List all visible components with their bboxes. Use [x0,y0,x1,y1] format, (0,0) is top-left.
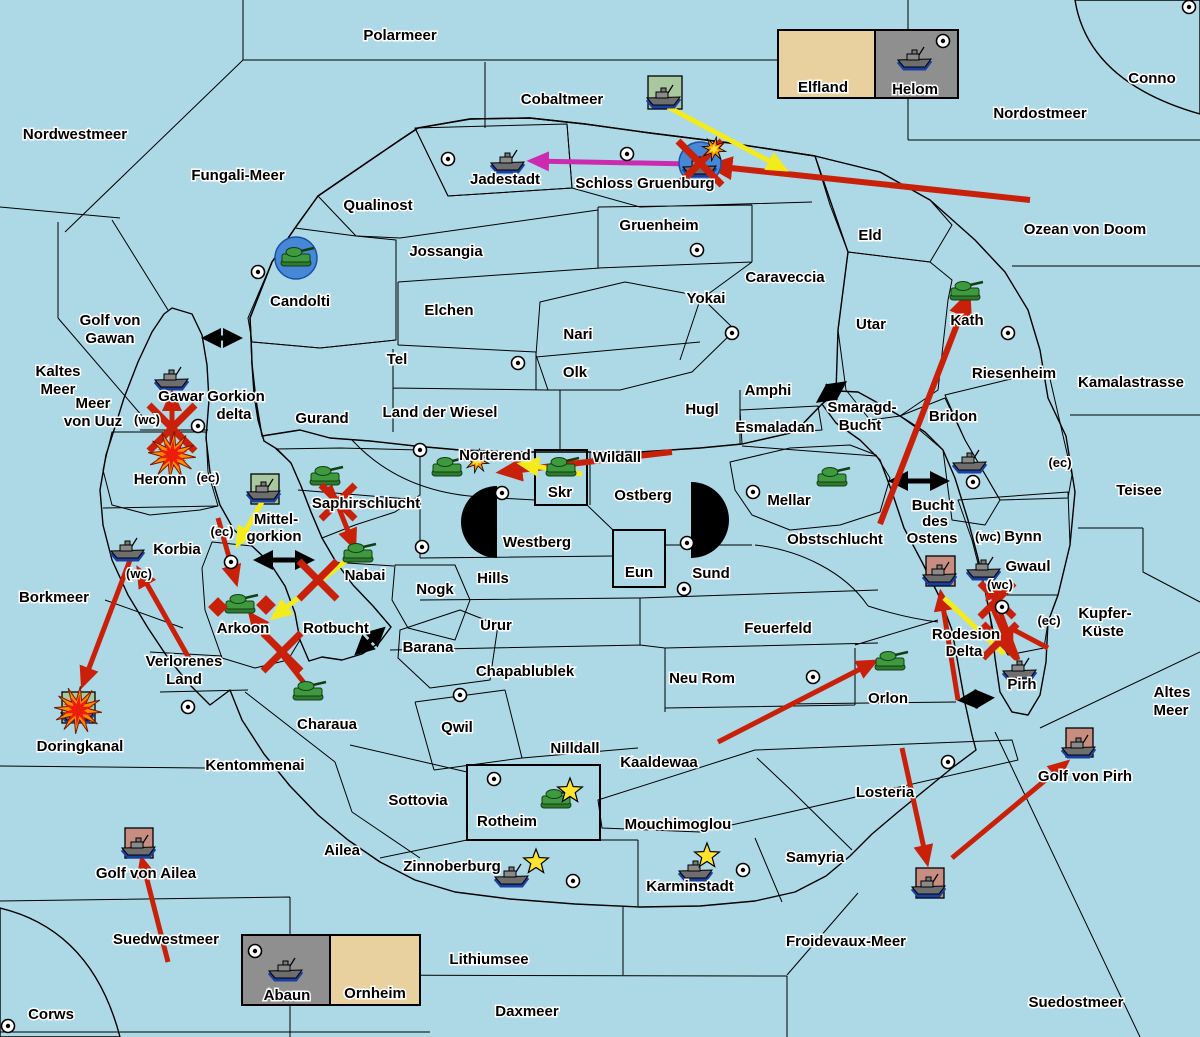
supply-center [192,420,205,433]
supply-center [454,689,467,702]
province-label: Land [166,671,202,688]
province-label: Saphirschlucht [312,495,420,512]
supply-center [416,541,429,554]
province-label: Kamalastrasse [1078,374,1184,391]
province-label: (wc) [134,412,160,427]
supply-center [621,148,634,161]
province-label: Golf von Ailea [96,865,197,882]
province-label: Mouchimoglou [625,816,732,833]
province-label: (ec) [1048,455,1071,470]
province-label: Mellar [767,492,811,509]
supply-center [747,486,760,499]
province-label: Wildall [593,449,641,466]
province-label: Smaragd- [827,399,896,416]
supply-center [726,327,739,340]
province-label: Hills [477,570,509,587]
supply-center [942,756,955,769]
province-label: Golf von Pirh [1038,768,1132,785]
supply-center [496,487,509,500]
province-label: Borkmeer [19,589,89,606]
province-label: Feuerfeld [744,620,812,637]
supply-center [996,601,1009,614]
province-label: Gawar [158,388,204,405]
province-label: Suedostmeer [1028,994,1123,1011]
province-label: Gawan [85,330,134,347]
province-label: Westberg [503,534,571,551]
province-label: Gruenheim [619,217,698,234]
province-label: (wc) [126,566,152,581]
province-label: Nogk [416,581,454,598]
supply-center [414,444,427,457]
province-label: Charaua [297,716,358,733]
province-label: Losteria [856,784,915,801]
province-label: Bynn [1004,528,1042,545]
supply-center [691,244,704,257]
province-label: Bucht [839,417,882,434]
province-label: Nordwestmeer [23,126,127,143]
supply-center [937,35,950,48]
province-label: Abaun [264,987,311,1004]
province-label: Corws [28,1006,74,1023]
province-label: Barana [403,639,455,656]
province-label: Ozean von Doom [1024,221,1147,238]
province-label: Eun [625,564,653,581]
province-label: Meer [1153,702,1188,719]
province-label: Karminstadt [646,878,734,895]
province-label: Kath [950,312,983,329]
province-label: Nilldall [550,740,599,757]
province-label: Conno [1128,70,1175,87]
province-label: Meer [40,381,75,398]
supply-center [249,945,262,958]
war-map: PolarmeerCobaltmeerNordwestmeerFungali-M… [0,0,1200,1037]
province-label: des [922,513,948,530]
province-label: Gwaul [1005,558,1050,575]
province-label: Helom [892,81,938,98]
province-label: Delta [946,643,983,660]
province-label: Verlorenes [146,653,223,670]
supply-center [1183,1,1196,14]
supply-center [967,476,980,489]
supply-center [225,556,238,569]
province-label: Heronn [134,471,187,488]
province-label: Kupfer- [1078,605,1131,622]
province-label: Suedwestmeer [113,931,219,948]
province-label: Skr [548,484,572,501]
map-svg: PolarmeerCobaltmeerNordwestmeerFungali-M… [0,0,1200,1037]
province-label: Schloss Gruenburg [575,175,714,192]
province-label: Rodesion [932,626,1000,643]
strait-double-arrow [962,698,990,700]
province-label: Jadestadt [470,171,540,188]
province-label: Mittel- [254,511,298,528]
province-label: Doringkanal [37,738,124,755]
province-label: (wc) [975,529,1001,544]
province-label: Orlon [868,690,908,707]
province-label: Nordostmeer [993,105,1087,122]
province-label: Obstschlucht [787,531,883,548]
province-label: Ostberg [614,487,672,504]
province-label: Urur [480,617,512,634]
province-label: Kaltes [35,363,80,380]
supply-center [252,266,265,279]
province-label: Kaaldewaa [620,754,698,771]
province-label: Utar [856,316,886,333]
province-label: Teisee [1116,482,1162,499]
province-label: Olk [563,364,588,381]
province-label: Korbia [153,541,201,558]
province-label: Gurand [295,410,348,427]
province-label: Amphi [745,382,792,399]
province-label: delta [216,406,252,423]
province-label: gorkion [247,528,302,545]
province-label: Gorkion [207,388,265,405]
province-label: Samyria [786,849,845,866]
retreat-arrow [532,161,692,164]
province-label: Esmaladan [735,419,814,436]
province-label: Bridon [929,408,977,425]
supply-center [737,864,750,877]
supply-center [182,701,195,714]
supply-center [567,875,580,888]
province-label: von Uuz [64,413,122,430]
supply-center [442,153,455,166]
province-label: (ec) [1037,613,1060,628]
province-label: Jossangia [409,243,483,260]
province-label: Candolti [270,293,330,310]
province-label: Altes [1154,684,1191,701]
province-label: Hugl [685,401,718,418]
supply-center [512,357,525,370]
province-label: (wc) [987,577,1013,592]
supply-center [488,773,501,786]
province-label: Chapablublek [476,663,575,680]
province-label: Ostens [907,530,958,547]
supply-center [1002,327,1015,340]
province-label: Cobaltmeer [521,91,604,108]
province-label: Sottovia [388,792,448,809]
province-label: Kentommenai [205,757,304,774]
province-label: Meer [75,395,110,412]
province-label: Nabai [345,567,386,584]
province-label: Rotbucht [303,620,369,637]
province-label: (ec) [196,470,219,485]
supply-center [807,671,820,684]
province-label: Daxmeer [495,1003,559,1020]
province-label: Rotheim [477,813,537,830]
province-label: Elchen [424,302,473,319]
province-label: Elfland [798,79,848,96]
province-label: Pirh [1007,676,1036,693]
supply-center [2,1020,15,1033]
province-label: Arkoon [217,620,270,637]
province-label: Land der Wiesel [383,404,498,421]
province-label: Norterend [459,447,531,464]
province-label: Golf von [80,312,141,329]
province-label: Fungali-Meer [191,167,285,184]
province-label: Caraveccia [745,269,825,286]
supply-center [681,537,694,550]
province-label: Nari [563,326,592,343]
province-label: Ornheim [344,985,406,1002]
province-label: Tel [387,351,408,368]
province-label: Qwil [441,719,473,736]
province-label: Polarmeer [363,27,437,44]
province-label: Neu Rom [669,670,735,687]
province-label: (ec) [210,524,233,539]
province-label: Küste [1082,623,1124,640]
province-label: Lithiumsee [449,951,528,968]
province-label: Froidevaux-Meer [786,933,906,950]
province-label: Riesenheim [972,365,1056,382]
supply-center [678,583,691,596]
province-label: Ailea [324,842,361,859]
province-label: Yokai [687,290,726,307]
province-label: Qualinost [343,197,412,214]
province-label: Zinnoberburg [403,858,501,875]
province-label: Eld [858,227,881,244]
province-label: Bucht [912,497,955,514]
province-label: Sund [692,565,730,582]
